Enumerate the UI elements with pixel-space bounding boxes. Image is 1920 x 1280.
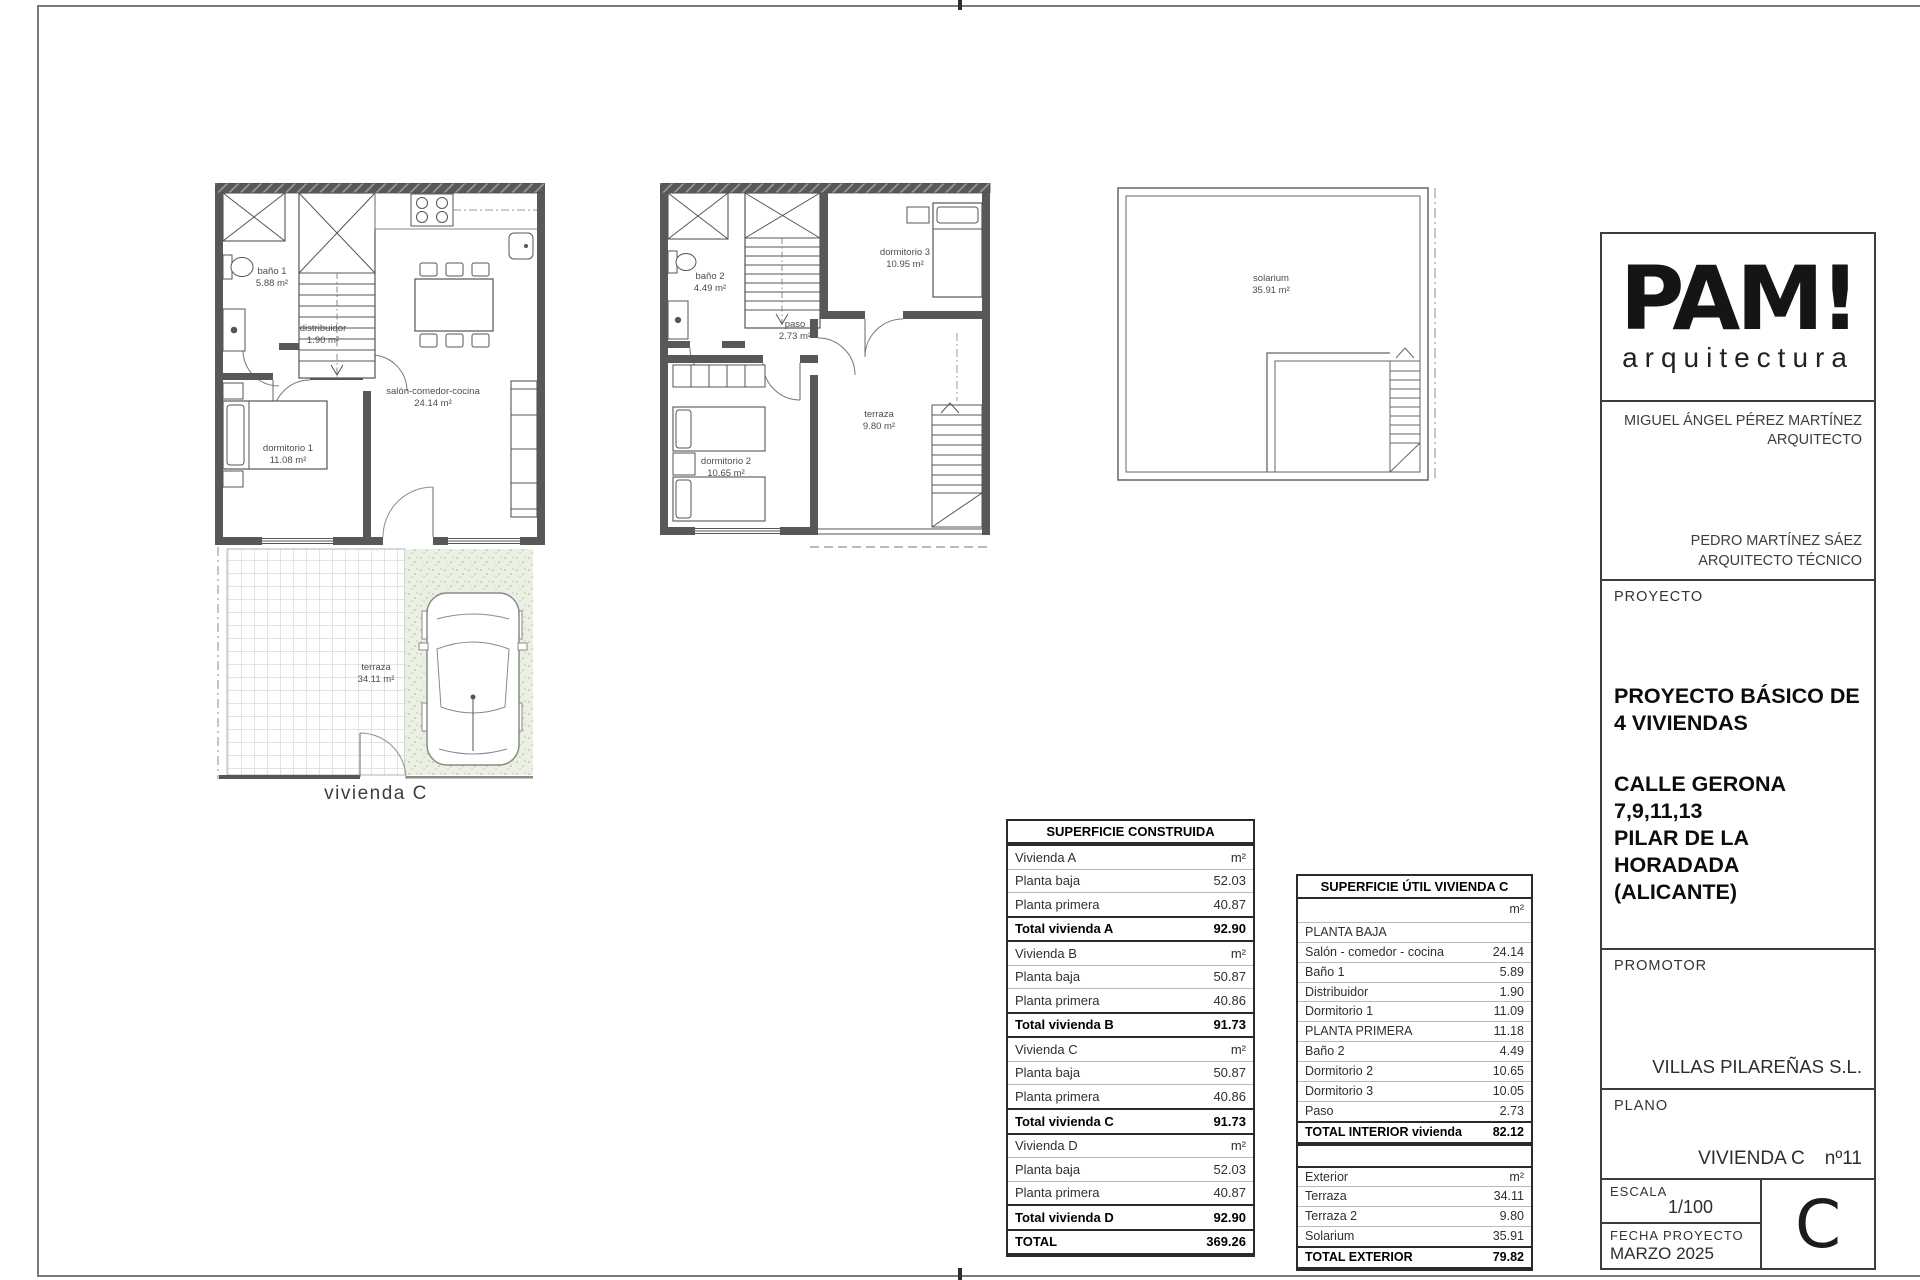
row-label: Vivienda B — [1015, 945, 1077, 963]
table-row: Planta primera40.86 — [1008, 1084, 1253, 1108]
room-area: 35.91 m² — [1252, 285, 1290, 296]
table-row-total: Total vivienda B91.73 — [1008, 1012, 1253, 1039]
room-area: 4.49 m² — [694, 283, 726, 294]
row-value: 91.73 — [1213, 1016, 1246, 1034]
row-value: 9.80 — [1500, 1208, 1524, 1225]
room-area: 34.11 m² — [358, 674, 395, 685]
center-mark-bottom — [958, 1268, 962, 1280]
row-label: Planta baja — [1015, 1064, 1080, 1082]
scale-value: 1/100 — [1668, 1197, 1713, 1218]
row-label: Planta baja — [1015, 968, 1080, 986]
room-label-terraza-2: terraza 9.80 m² — [863, 409, 895, 433]
row-label: Total vivienda A — [1015, 920, 1113, 938]
row-value: m² — [1231, 1137, 1246, 1155]
table-row: Vivienda Bm² — [1008, 942, 1253, 965]
table-row-total: Total vivienda A92.90 — [1008, 916, 1253, 943]
room-area: 11.08 m² — [270, 455, 307, 466]
row-value: 40.86 — [1213, 992, 1246, 1010]
row-value: 4.49 — [1500, 1043, 1524, 1060]
scale-date-box: ESCALA 1/100 FECHA PROYECTO MARZO 2025 C — [1602, 1180, 1874, 1268]
sheet-border-top — [37, 5, 1920, 7]
sofa-icon — [511, 381, 537, 517]
room-area: 24.14 m² — [414, 398, 452, 409]
table-row-grand-total: TOTAL369.26 — [1008, 1231, 1253, 1256]
row-value: 11.09 — [1494, 1003, 1524, 1020]
room-label-bano-2: baño 2 4.49 m² — [694, 271, 726, 295]
room-name: terraza — [361, 662, 391, 673]
table-row: Planta baja52.03 — [1008, 1157, 1253, 1181]
drawing-sheet: baño 1 5.88 m² distribuidor 1.90 m² saló… — [0, 0, 1920, 1280]
table-row: PLANTA BAJA — [1298, 922, 1531, 942]
room-label-distribuidor: distribuidor 1.90 m² — [300, 323, 346, 347]
table-row: Vivienda Dm² — [1008, 1135, 1253, 1158]
room-label-dormitorio-3: dormitorio 3 10.95 m² — [880, 247, 930, 271]
row-label: Paso — [1305, 1103, 1334, 1120]
architect-name: MIGUEL ÁNGEL PÉREZ MARTÍNEZ — [1614, 412, 1862, 432]
table-row: Exteriorm² — [1298, 1166, 1531, 1187]
table-row: Planta primera40.86 — [1008, 988, 1253, 1012]
project-box: PROYECTO PROYECTO BÁSICO DE 4 VIVIENDAS … — [1602, 581, 1874, 950]
room-area: 10.65 m² — [707, 468, 745, 479]
room-name: paso — [785, 319, 806, 330]
table-row: Dormitorio 310.05 — [1298, 1081, 1531, 1101]
row-label: Distribuidor — [1305, 984, 1368, 1001]
row-value: 40.86 — [1213, 1088, 1246, 1106]
row-value: 24.14 — [1493, 944, 1524, 961]
row-value: 82.12 — [1493, 1124, 1524, 1141]
table-row-total: TOTAL INTERIOR vivienda82.12 — [1298, 1121, 1531, 1144]
row-label: Terraza 2 — [1305, 1208, 1357, 1225]
row-value: 91.73 — [1213, 1113, 1246, 1131]
plan-label: PLANO — [1614, 1098, 1862, 1114]
table-spacer — [1298, 1144, 1531, 1166]
row-value: 35.91 — [1493, 1228, 1524, 1245]
row-value: 5.89 — [1500, 964, 1524, 981]
project-address-line: (ALICANTE) — [1614, 879, 1862, 906]
room-name: terraza — [864, 409, 894, 420]
center-mark-top — [958, 0, 962, 10]
row-label: TOTAL EXTERIOR — [1305, 1249, 1413, 1266]
table-row: Planta primera40.87 — [1008, 1181, 1253, 1205]
room-name: distribuidor — [300, 323, 346, 334]
row-label: Terraza — [1305, 1188, 1347, 1205]
table-row: Dormitorio 210.65 — [1298, 1061, 1531, 1081]
row-label: Solarium — [1305, 1228, 1354, 1245]
row-label: TOTAL — [1015, 1233, 1057, 1251]
plan-name-box: PLANO VIVIENDA Cnº11 — [1602, 1090, 1874, 1180]
row-label: TOTAL INTERIOR vivienda — [1305, 1124, 1462, 1141]
row-value: m² — [1231, 849, 1246, 867]
row-label: Planta baja — [1015, 1161, 1080, 1179]
table-row: Planta baja50.87 — [1008, 1061, 1253, 1085]
row-value: 52.03 — [1213, 872, 1246, 890]
row-label: Planta primera — [1015, 896, 1100, 914]
row-label: Total vivienda C — [1015, 1113, 1114, 1131]
table-row: PLANTA PRIMERA11.18 — [1298, 1021, 1531, 1041]
room-label-dormitorio-2: dormitorio 2 10.65 m² — [701, 456, 751, 480]
date-value: MARZO 2025 — [1610, 1244, 1752, 1264]
project-title-line: 4 VIVIENDAS — [1614, 710, 1862, 737]
row-value: 11.18 — [1494, 1023, 1524, 1040]
table-title: SUPERFICIE CONSTRUIDA — [1008, 821, 1253, 844]
row-label: Planta primera — [1015, 1088, 1100, 1106]
row-label: Salón - comedor - cocina — [1305, 944, 1444, 961]
room-area: 1.90 m² — [307, 335, 339, 346]
room-name: salón-comedor-cocina — [386, 386, 479, 397]
plan-number: nº11 — [1825, 1148, 1862, 1169]
project-label: PROYECTO — [1614, 589, 1862, 605]
row-value: 2.73 — [1500, 1103, 1524, 1120]
technical-architect-name: PEDRO MARTÍNEZ SÁEZ — [1691, 532, 1862, 552]
logo-box: PAM! arquitectura — [1602, 234, 1874, 402]
table-row: Distribuidor1.90 — [1298, 982, 1531, 1002]
row-label: Dormitorio 1 — [1305, 1003, 1373, 1020]
table-row: Salón - comedor - cocina24.14 — [1298, 942, 1531, 962]
table-row-total: TOTAL EXTERIOR79.82 — [1298, 1246, 1531, 1269]
technical-architect-role: ARQUITECTO TÉCNICO — [1691, 552, 1862, 572]
promoter-box: PROMOTOR VILLAS PILAREÑAS S.L. — [1602, 950, 1874, 1090]
row-value: 52.03 — [1213, 1161, 1246, 1179]
room-label-paso: paso 2.73 m² — [779, 319, 811, 343]
sheet-letter: C — [1762, 1180, 1874, 1268]
stove-icon — [411, 194, 453, 226]
row-value: 79.82 — [1493, 1249, 1524, 1266]
row-value: 40.87 — [1213, 1184, 1246, 1202]
row-value: m² — [1231, 945, 1246, 963]
row-label: Baño 2 — [1305, 1043, 1345, 1060]
project-address-line: CALLE GERONA — [1614, 771, 1862, 798]
row-value: m² — [1509, 1169, 1524, 1186]
row-value: 50.87 — [1213, 968, 1246, 986]
room-area: 5.88 m² — [256, 278, 288, 289]
row-label: Planta baja — [1015, 872, 1080, 890]
table-row: Planta baja50.87 — [1008, 965, 1253, 989]
architect-role: ARQUITECTO — [1614, 431, 1862, 451]
row-value: 92.90 — [1213, 920, 1246, 938]
row-label: Dormitorio 2 — [1305, 1063, 1373, 1080]
plan-caption: vivienda C — [266, 783, 486, 805]
row-label: Vivienda D — [1015, 1137, 1078, 1155]
plan-name: VIVIENDA C — [1698, 1148, 1805, 1169]
project-address-line: PILAR DE LA HORADADA — [1614, 825, 1862, 879]
table-row: Paso2.73 — [1298, 1101, 1531, 1121]
twin-beds-icon — [673, 365, 765, 521]
solarium-plan — [1115, 183, 1445, 493]
room-label-salon: salón-comedor-cocina 24.14 m² — [386, 386, 479, 410]
table-row: Dormitorio 111.09 — [1298, 1001, 1531, 1021]
superficie-util-table: SUPERFICIE ÚTIL VIVIENDA C m² PLANTA BAJ… — [1296, 874, 1533, 1271]
row-label: Vivienda A — [1015, 849, 1076, 867]
table-row: Planta baja52.03 — [1008, 869, 1253, 893]
project-address-line: 7,9,11,13 — [1614, 798, 1862, 825]
room-area: 2.73 m² — [779, 331, 811, 342]
date-box: FECHA PROYECTO MARZO 2025 — [1602, 1224, 1760, 1268]
row-label: Baño 1 — [1305, 964, 1345, 981]
unit-label: m² — [1509, 901, 1524, 918]
row-label: Dormitorio 3 — [1305, 1083, 1373, 1100]
row-value: 10.05 — [1493, 1083, 1524, 1100]
room-name: dormitorio 2 — [701, 456, 751, 467]
room-name: dormitorio 1 — [263, 443, 313, 454]
title-block: PAM! arquitectura MIGUEL ÁNGEL PÉREZ MAR… — [1600, 232, 1876, 1270]
first-floor-plan — [660, 183, 995, 563]
promoter-label: PROMOTOR — [1614, 958, 1862, 974]
table-row: Planta primera40.87 — [1008, 892, 1253, 916]
row-value: 369.26 — [1206, 1233, 1246, 1251]
promoter-name: VILLAS PILAREÑAS S.L. — [1652, 1056, 1862, 1078]
table-row-total: Total vivienda D92.90 — [1008, 1204, 1253, 1231]
row-label: PLANTA PRIMERA — [1305, 1023, 1412, 1040]
table-row-total: Total vivienda C91.73 — [1008, 1108, 1253, 1135]
car-icon — [419, 593, 527, 765]
row-value: 1.90 — [1500, 984, 1524, 1001]
row-value: 40.87 — [1213, 896, 1246, 914]
room-label-dormitorio-1: dormitorio 1 11.08 m² — [263, 443, 313, 467]
sheet-border-left — [37, 5, 39, 1277]
superficie-construida-table: SUPERFICIE CONSTRUIDA Vivienda Am² Plant… — [1006, 819, 1255, 1257]
logo-subtitle: arquitectura — [1622, 342, 1854, 374]
table-row: Terraza 29.80 — [1298, 1206, 1531, 1226]
row-label: Planta primera — [1015, 992, 1100, 1010]
project-title-line: PROYECTO BÁSICO DE — [1614, 683, 1862, 710]
pam-logo: PAM! — [1620, 259, 1856, 338]
room-name: solarium — [1253, 273, 1289, 284]
architects-box: MIGUEL ÁNGEL PÉREZ MARTÍNEZ ARQUITECTO P… — [1602, 402, 1874, 582]
row-label: PLANTA BAJA — [1305, 924, 1387, 941]
table-row: Baño 15.89 — [1298, 962, 1531, 982]
row-label: Exterior — [1305, 1169, 1348, 1186]
room-label-terraza: terraza 34.11 m² — [358, 662, 395, 686]
dining-table-icon — [415, 263, 493, 347]
room-name: dormitorio 3 — [880, 247, 930, 258]
row-value: 50.87 — [1213, 1064, 1246, 1082]
room-label-solarium: solarium 35.91 m² — [1252, 273, 1290, 297]
sheet-border-bottom — [37, 1275, 1920, 1277]
row-value: 92.90 — [1213, 1209, 1246, 1227]
table-title: SUPERFICIE ÚTIL VIVIENDA C — [1298, 876, 1531, 899]
row-value: m² — [1231, 1041, 1246, 1059]
row-value: 34.11 — [1494, 1188, 1524, 1205]
row-label: Total vivienda D — [1015, 1209, 1114, 1227]
room-name: baño 1 — [257, 266, 286, 277]
room-name: baño 2 — [695, 271, 724, 282]
date-label: FECHA PROYECTO — [1610, 1228, 1752, 1243]
row-label: Planta primera — [1015, 1184, 1100, 1202]
table-row: Terraza34.11 — [1298, 1186, 1531, 1206]
unit-row: m² — [1298, 899, 1531, 922]
table-row: Vivienda Cm² — [1008, 1038, 1253, 1061]
table-row: Solarium35.91 — [1298, 1226, 1531, 1246]
table-row: Baño 24.49 — [1298, 1041, 1531, 1061]
row-label: Vivienda C — [1015, 1041, 1078, 1059]
row-value: 10.65 — [1493, 1063, 1524, 1080]
room-label-bano-1: baño 1 5.88 m² — [256, 266, 288, 290]
room-area: 9.80 m² — [863, 421, 895, 432]
scale-box: ESCALA 1/100 — [1602, 1180, 1760, 1224]
bed-icon — [223, 383, 327, 487]
row-label: Total vivienda B — [1015, 1016, 1114, 1034]
table-row: Vivienda Am² — [1008, 844, 1253, 869]
room-area: 10.95 m² — [886, 259, 924, 270]
